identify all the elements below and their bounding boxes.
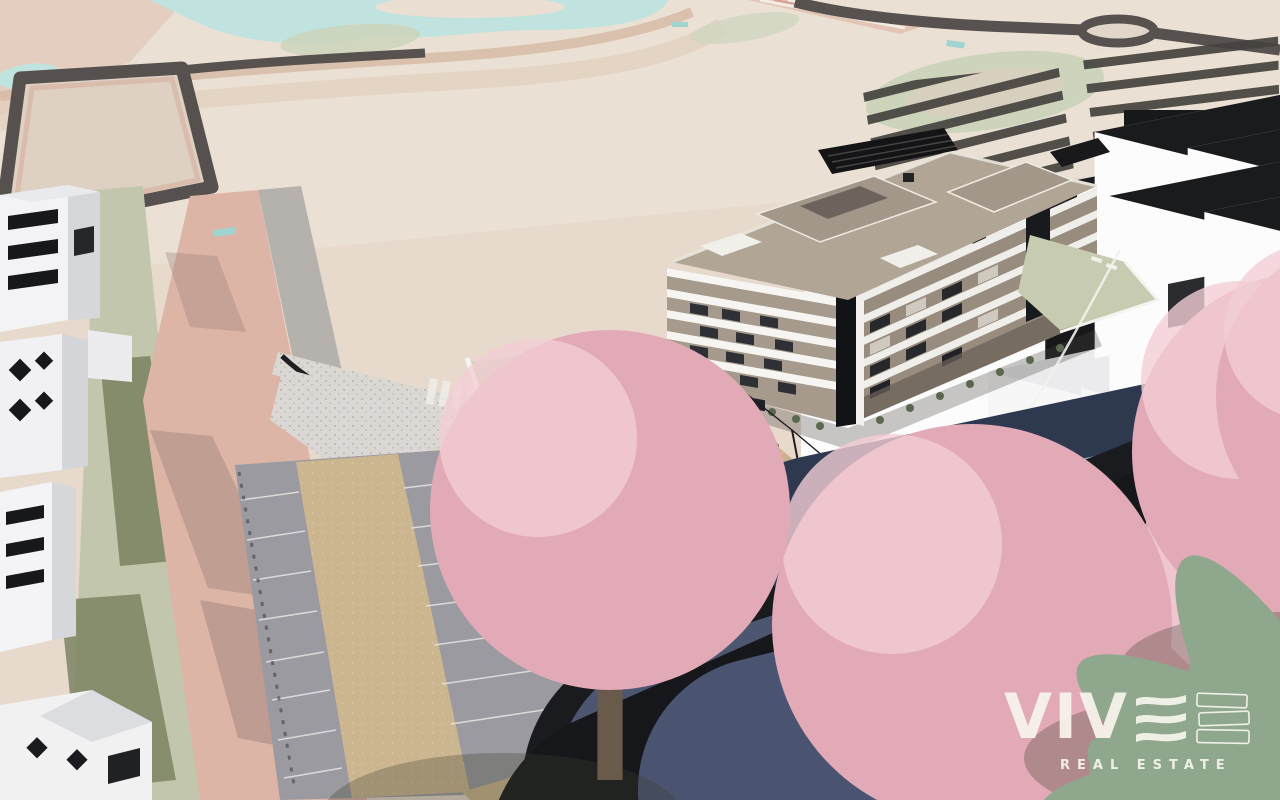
brand-tagline: REAL ESTATE bbox=[1004, 758, 1253, 773]
corner-pier bbox=[856, 299, 864, 426]
brand-wave-e-icon bbox=[1136, 693, 1188, 747]
west-building-3 bbox=[0, 482, 76, 652]
brand-text: VIV bbox=[1004, 690, 1129, 745]
brand-bricks-icon bbox=[1195, 692, 1253, 746]
west-building-1 bbox=[0, 185, 100, 332]
brand-row: VIV bbox=[1004, 690, 1253, 747]
watermark-logo: VIV REAL ESTATE bbox=[1004, 690, 1253, 773]
render-image: VIV REAL ESTATE bbox=[0, 0, 1280, 800]
roof-chimney bbox=[903, 173, 914, 182]
roundabout bbox=[1082, 19, 1154, 43]
villa-pool bbox=[672, 22, 688, 27]
